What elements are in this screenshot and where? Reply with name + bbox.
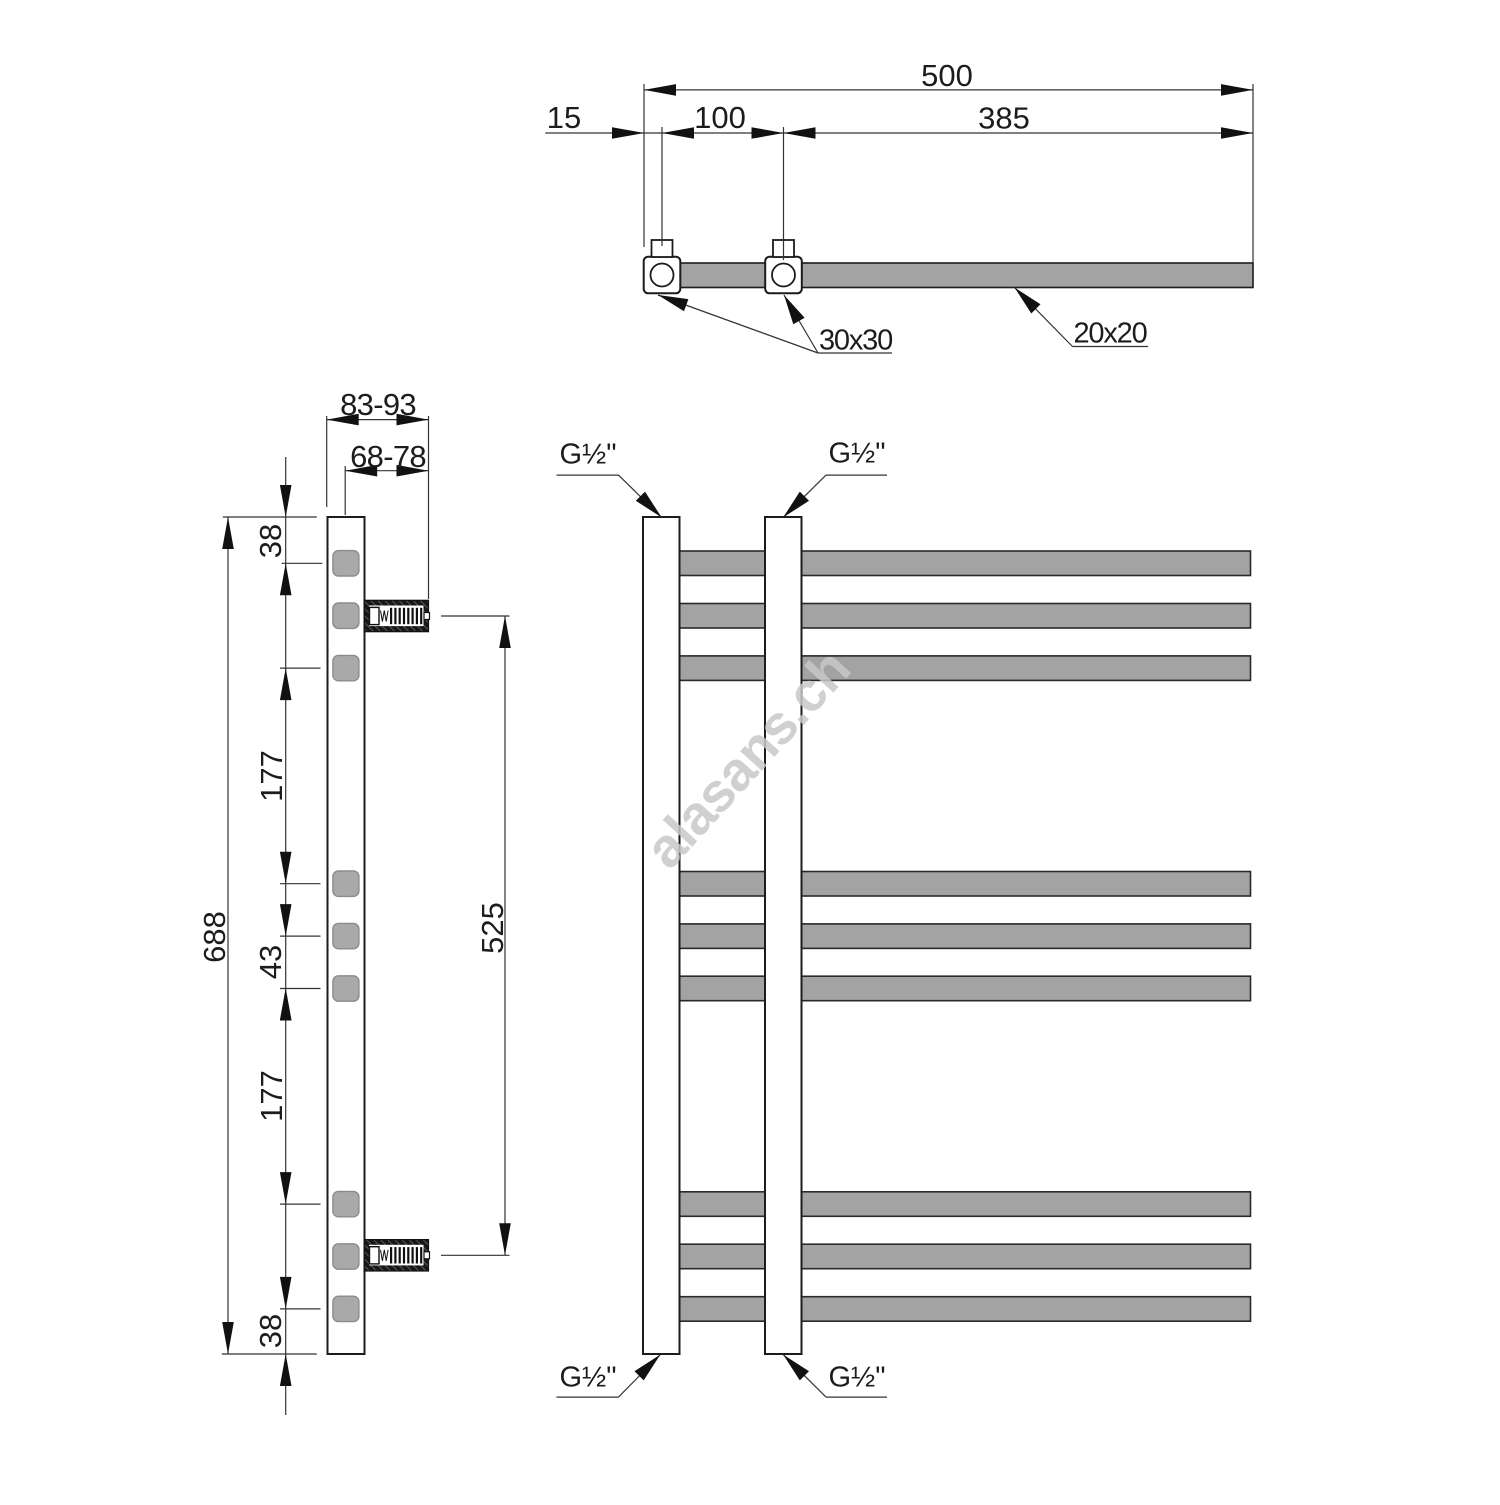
svg-text:500: 500	[921, 58, 973, 93]
svg-text:G½": G½"	[828, 1361, 885, 1393]
svg-text:83-93: 83-93	[340, 387, 416, 422]
svg-text:30x30: 30x30	[819, 324, 892, 356]
svg-text:525: 525	[475, 902, 510, 954]
svg-text:43: 43	[253, 945, 288, 979]
svg-text:100: 100	[694, 100, 746, 135]
svg-text:177: 177	[254, 1070, 289, 1122]
svg-text:38: 38	[253, 1314, 288, 1348]
svg-text:20x20: 20x20	[1073, 317, 1146, 349]
svg-text:G½": G½"	[559, 1361, 616, 1393]
svg-text:68-78: 68-78	[350, 439, 426, 474]
svg-text:15: 15	[547, 100, 581, 135]
svg-text:G½": G½"	[559, 438, 616, 470]
svg-text:688: 688	[197, 911, 232, 963]
svg-text:38: 38	[253, 524, 288, 558]
svg-text:385: 385	[978, 101, 1030, 136]
svg-text:G½": G½"	[828, 437, 885, 469]
svg-text:177: 177	[254, 750, 289, 802]
